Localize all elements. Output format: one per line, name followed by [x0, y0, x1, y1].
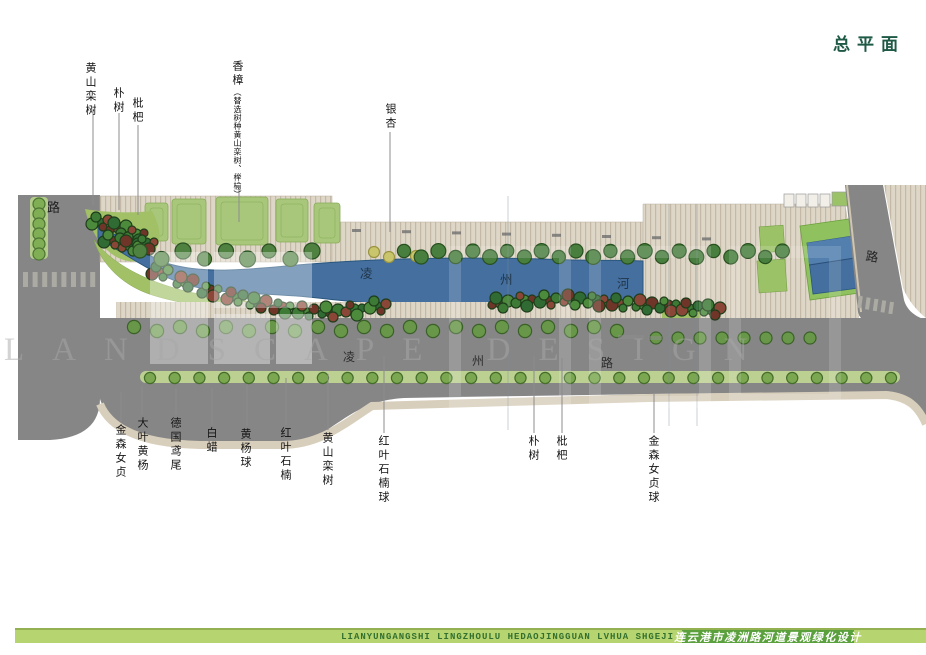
- plant-label-bottom: 金森女贞: [114, 424, 125, 480]
- plant-label-top: 香樟（替选树种黄山栾树、榉榆）: [231, 60, 242, 199]
- road-name-char: 州: [472, 354, 484, 368]
- river-name-char: 凌: [360, 267, 373, 281]
- plant-label-top: 朴树: [112, 87, 123, 115]
- plant-label-bottom: 白蜡: [205, 427, 216, 455]
- plant-label-top: 枇杷: [131, 97, 142, 125]
- right-road-name: 路: [865, 248, 880, 265]
- plant-label-main: 香樟: [231, 60, 243, 88]
- structures: [784, 192, 852, 207]
- page-title: 总平面: [833, 30, 905, 55]
- river-name-char: 州: [500, 273, 513, 287]
- plant-label-bottom: 黄杨球: [239, 428, 250, 470]
- plant-label-bottom: 朴树: [527, 435, 538, 463]
- road-name-char: 凌: [343, 350, 355, 364]
- footer-project-code: LIANYUNGANGSHI LINGZHOULU HEDAOJINGGUAN …: [341, 632, 674, 642]
- river-name-char: 河: [617, 277, 630, 291]
- plant-label-bottom: 金森女贞球: [647, 435, 658, 505]
- plant-label-note: （替选树种黄山栾树、榉榆）: [233, 88, 242, 199]
- plant-label-bottom: 红叶石楠球: [377, 435, 388, 505]
- plant-label-bottom: 黄山栾树: [321, 432, 332, 488]
- plant-label-bottom: 德国鸢尾: [169, 417, 180, 473]
- watermark-text: LANDSCAPE DESIGN: [4, 332, 776, 368]
- plant-label-bottom: 红叶石楠: [279, 427, 290, 483]
- footer-project-title: 连云港市凌洲路河道景观绿化设计: [682, 630, 854, 643]
- left-road-name: 路: [47, 200, 60, 215]
- plant-label-top: 银杏: [384, 103, 395, 131]
- plant-label-top: 黄山栾树: [84, 62, 95, 118]
- plan-sheet: LANDSCAPE DESIGN 路 凌 州 河 凌 州 路 路 总平面 黄山栾…: [0, 0, 926, 655]
- road-name-char: 路: [601, 355, 613, 370]
- footer-bar: LIANYUNGANGSHI LINGZHOULU HEDAOJINGGUAN …: [15, 628, 926, 643]
- plant-label-bottom: 大叶黄杨: [136, 417, 147, 473]
- plant-label-bottom: 枇杷: [555, 435, 566, 463]
